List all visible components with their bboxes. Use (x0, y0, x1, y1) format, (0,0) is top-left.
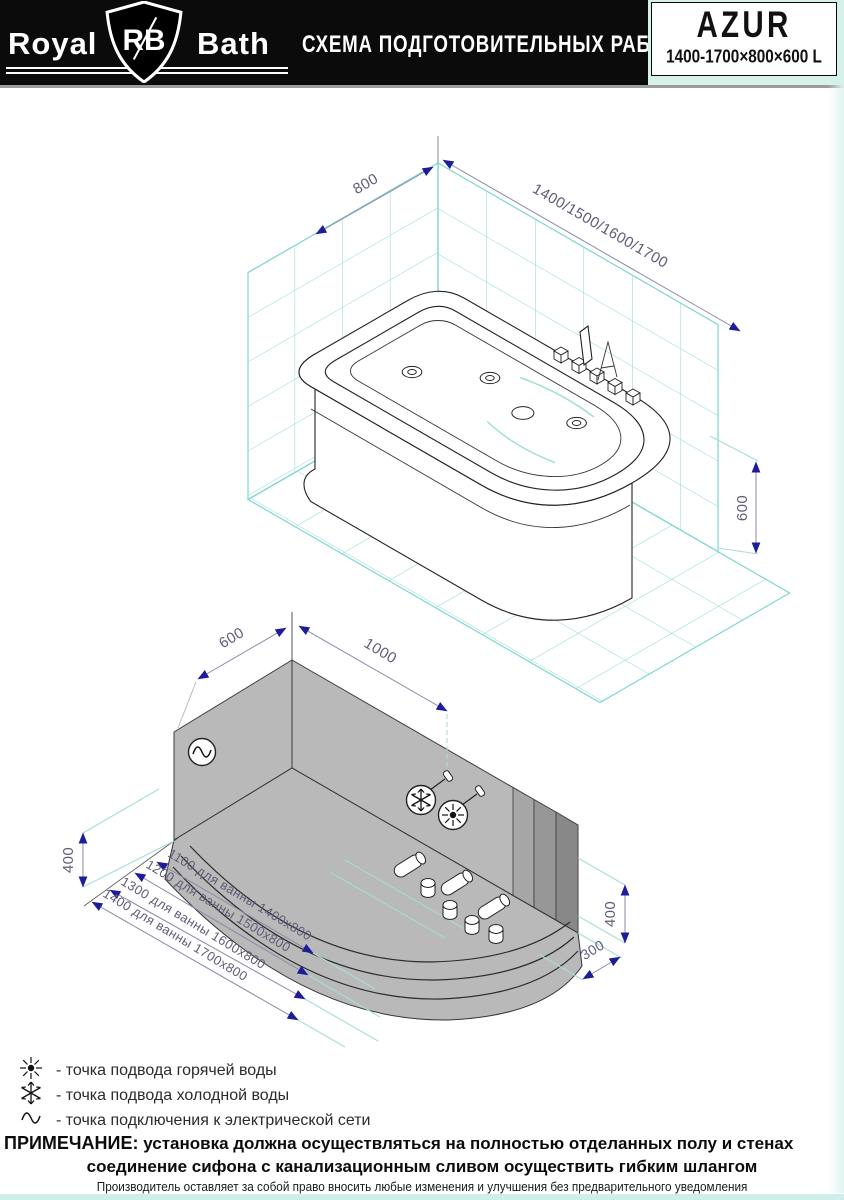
brand-bath-text: Bath (197, 26, 270, 62)
legend: - точка подвода горячей воды - точка под… (8, 1058, 371, 1133)
brand-shield-logo: RB (100, 1, 188, 83)
svg-text:300: 300 (578, 937, 607, 963)
note-text-1: установка должна осуществляться на полно… (143, 1134, 793, 1153)
legend-label: - точка подключения к электрической сети (56, 1112, 371, 1130)
dim-height-right-400: 400 (578, 858, 625, 943)
page-edge-tint-bottom (0, 1194, 844, 1200)
model-box: AZUR 1400-1700×800×600 L (651, 2, 837, 76)
upper-drawing: 800 1400/1500/1600/1700 600 (248, 136, 790, 703)
electric-point (189, 739, 216, 766)
note-line-1: ПРИМЕЧАНИЕ: установка должна осуществлят… (4, 1133, 840, 1154)
svg-text:800: 800 (350, 170, 381, 198)
svg-text:1000: 1000 (361, 635, 400, 668)
model-name: AZUR (669, 5, 820, 46)
legend-row-cold: - точка подвода холодной воды (8, 1083, 371, 1108)
brand-shield-letters: RB (123, 24, 166, 57)
svg-text:400: 400 (602, 901, 619, 927)
header-rule (0, 85, 844, 88)
svg-text:600: 600 (734, 495, 751, 521)
note-line-2: соединение сифона с канализационным слив… (4, 1157, 840, 1177)
svg-text:400: 400 (60, 847, 77, 873)
brand-royal-text: Royal (8, 26, 97, 62)
legend-row-hot: - точка подвода горячей воды (8, 1058, 371, 1083)
note-label: ПРИМЕЧАНИЕ: (4, 1133, 138, 1153)
legend-label: - точка подвода горячей воды (56, 1062, 277, 1080)
note: ПРИМЕЧАНИЕ: установка должна осуществлят… (4, 1133, 840, 1177)
model-dimensions: 1400-1700×800×600 L (666, 46, 822, 67)
svg-text:600: 600 (216, 624, 247, 652)
page-edge-tint-right (828, 85, 844, 1193)
legend-label: - точка подвода холодной воды (56, 1087, 289, 1105)
footer-disclaimer: Производитель оставляет за собой право в… (0, 1180, 844, 1194)
lower-drawing: 600 1000 400 400 (60, 612, 625, 1047)
scheme-title: СХЕМА ПОДГОТОВИТЕЛЬНЫХ РАБОТ (302, 31, 678, 59)
installation-drawings: 800 1400/1500/1600/1700 600 (0, 0, 844, 1200)
model-area: AZUR 1400-1700×800×600 L (648, 0, 844, 85)
electric-icon (8, 1105, 56, 1136)
scheme-page: 800 1400/1500/1600/1700 600 (0, 0, 844, 1200)
header: Royal Bath RB СХЕМА ПОДГОТОВИТЕЛЬНЫХ РАБ… (0, 0, 844, 85)
legend-row-electric: - точка подключения к электрической сети (8, 1108, 371, 1133)
